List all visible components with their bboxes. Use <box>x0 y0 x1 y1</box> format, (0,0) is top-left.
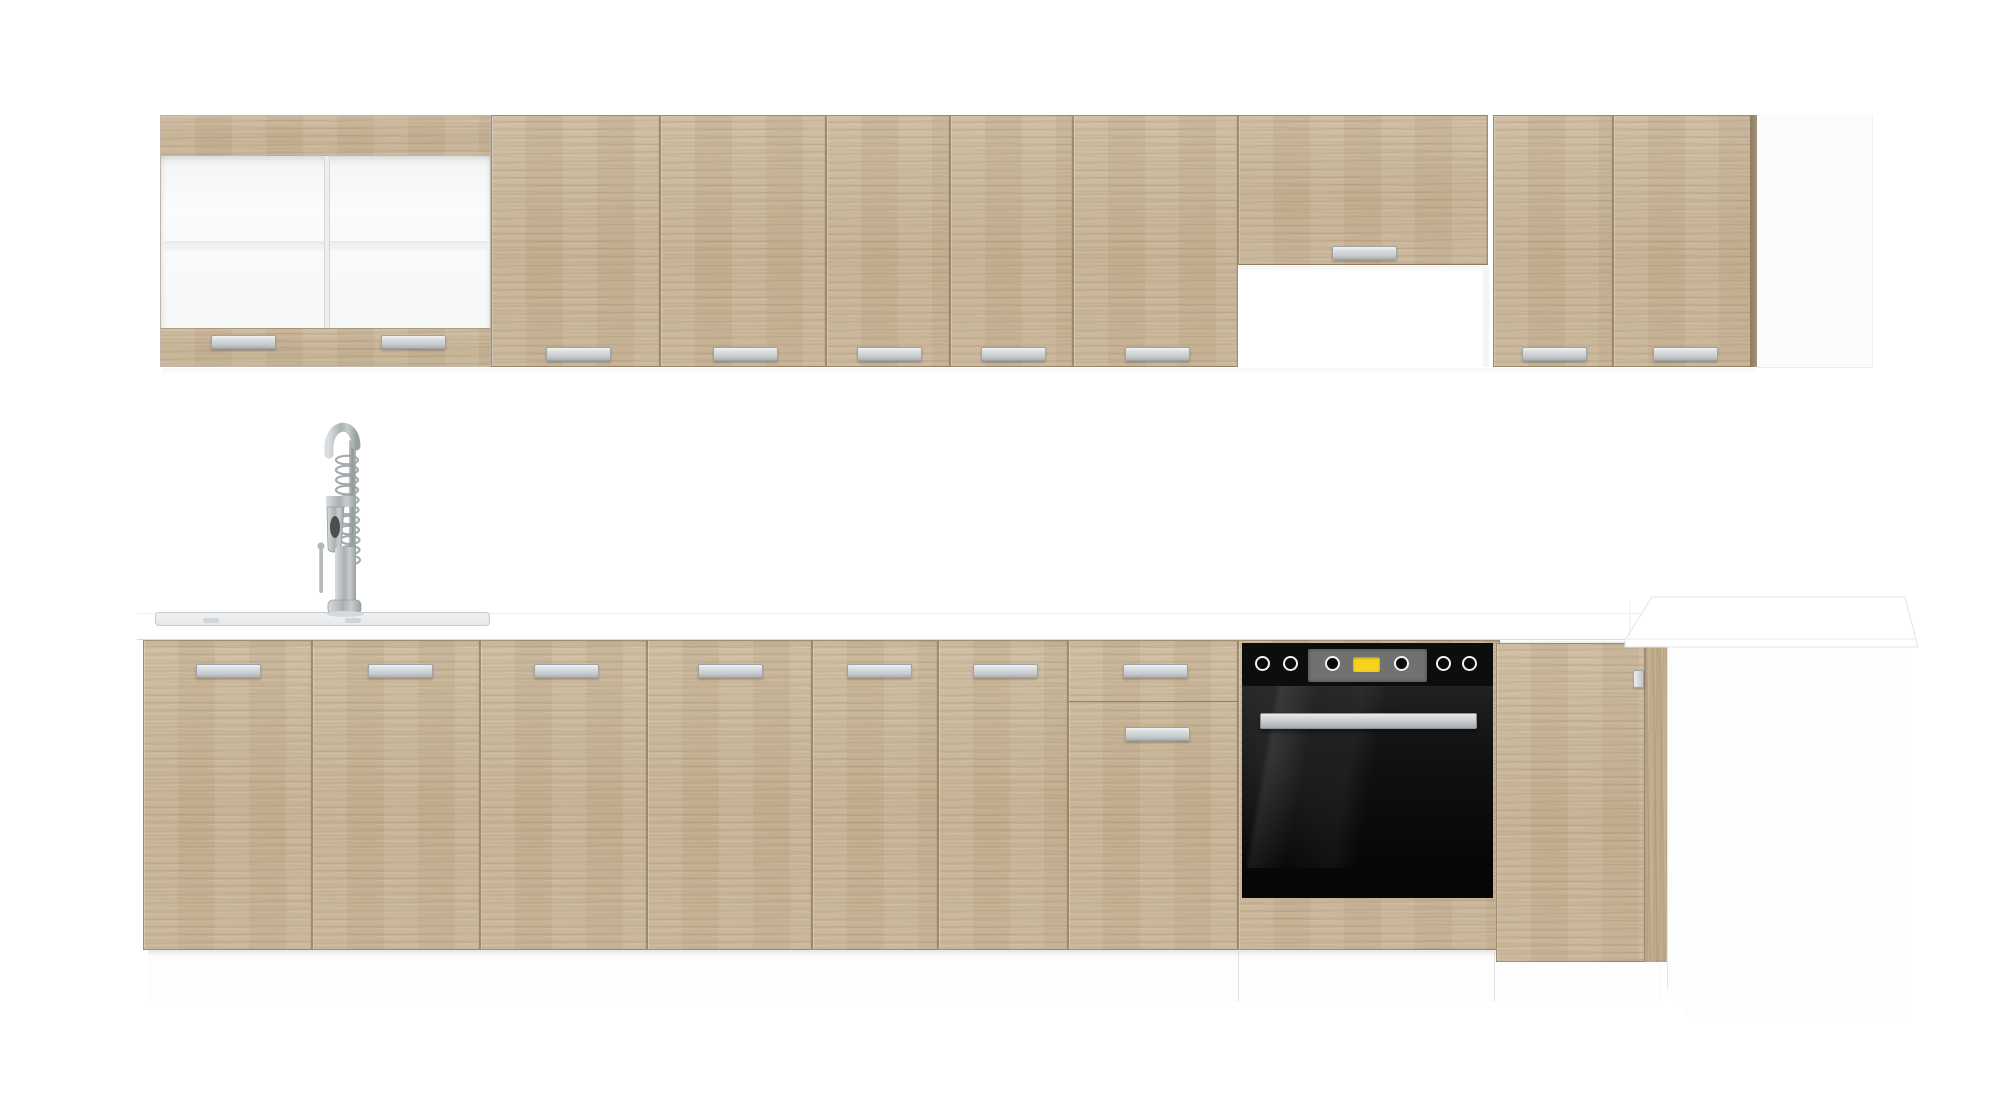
hood-cabinet-handle <box>1332 246 1397 260</box>
oven-knob-1 <box>1255 656 1270 671</box>
oven-bottom-band <box>1242 868 1493 898</box>
corner-base-door <box>1496 643 1645 962</box>
glass-door-left-handle <box>211 335 276 349</box>
hood-recess-shadow <box>1240 266 1486 272</box>
base-door-5-handle <box>847 664 912 678</box>
oven-knob-4 <box>1394 656 1409 671</box>
hood-recess-side <box>1483 265 1489 367</box>
plinth <box>148 950 1662 1001</box>
wall-door-1-handle <box>546 347 611 361</box>
hood-cabinet-door <box>1238 115 1488 265</box>
oven-housing <box>1238 640 1500 950</box>
wall-door-2 <box>660 115 826 367</box>
drawer-handle <box>1123 664 1188 678</box>
kitchen-set-product-photo <box>0 0 2000 1100</box>
glass-cabinet-bottom-rail <box>161 328 490 366</box>
wall-door-7-handle <box>1653 347 1718 361</box>
wall-door-4-handle <box>981 347 1046 361</box>
corner-end-panel <box>1667 645 1906 1022</box>
sink-drain-mark-left <box>203 618 219 623</box>
glass-door-divider <box>324 156 330 331</box>
wall-end-edge <box>1750 115 1757 367</box>
base-door-1-handle <box>196 664 261 678</box>
built-in-oven <box>1242 643 1493 898</box>
oven-control-panel <box>1242 643 1493 686</box>
spring-mixer-tap <box>300 410 390 618</box>
base-door-6 <box>938 640 1068 950</box>
plinth-seam-1 <box>1238 951 1239 1001</box>
wall-door-4 <box>950 115 1073 367</box>
oven-knob-6 <box>1462 656 1477 671</box>
sink-drain-mark-right <box>345 618 361 623</box>
worktop-corner <box>1600 590 1930 655</box>
glass-cabinet-glass-front <box>161 156 490 331</box>
plinth-seam-2 <box>1494 951 1495 1001</box>
wall-door-5-handle <box>1125 347 1190 361</box>
base-door-4-handle <box>698 664 763 678</box>
base-door-2 <box>312 640 480 950</box>
wall-door-3-handle <box>857 347 922 361</box>
oven-knob-2 <box>1283 656 1298 671</box>
wall-door-6 <box>1493 115 1613 367</box>
wall-end-panel <box>1757 114 1873 368</box>
corner-door-handle <box>1633 670 1644 688</box>
wall-door-1 <box>491 115 660 367</box>
wall-door-2-handle <box>713 347 778 361</box>
oven-knob-3 <box>1325 656 1340 671</box>
base-door-3 <box>480 640 647 950</box>
drawer-door-seam <box>1069 701 1237 702</box>
glass-cabinet-top-rail <box>161 116 490 157</box>
base-door-3-handle <box>534 664 599 678</box>
base-door-4 <box>647 640 812 950</box>
glass-display-cabinet <box>160 115 491 367</box>
base-door-6-handle <box>973 664 1038 678</box>
corner-angled-edge <box>1645 643 1667 962</box>
wall-row-bottom-shadow <box>162 368 1756 374</box>
wall-door-5 <box>1073 115 1238 367</box>
base-door-5 <box>812 640 938 950</box>
oven-door-handle <box>1260 713 1477 729</box>
wall-door-6-handle <box>1522 347 1587 361</box>
base-door-1 <box>143 640 312 950</box>
wall-door-3 <box>826 115 950 367</box>
wall-door-7 <box>1613 115 1755 367</box>
oven-door-glass <box>1242 686 1493 868</box>
under-counter-shadow <box>143 641 1653 648</box>
oven-knob-5 <box>1436 656 1451 671</box>
drawer-base-door-handle <box>1125 727 1190 741</box>
drawer-base-unit <box>1068 640 1238 950</box>
oven-display-window <box>1353 657 1380 672</box>
base-door-2-handle <box>368 664 433 678</box>
glass-door-right-handle <box>381 335 446 349</box>
